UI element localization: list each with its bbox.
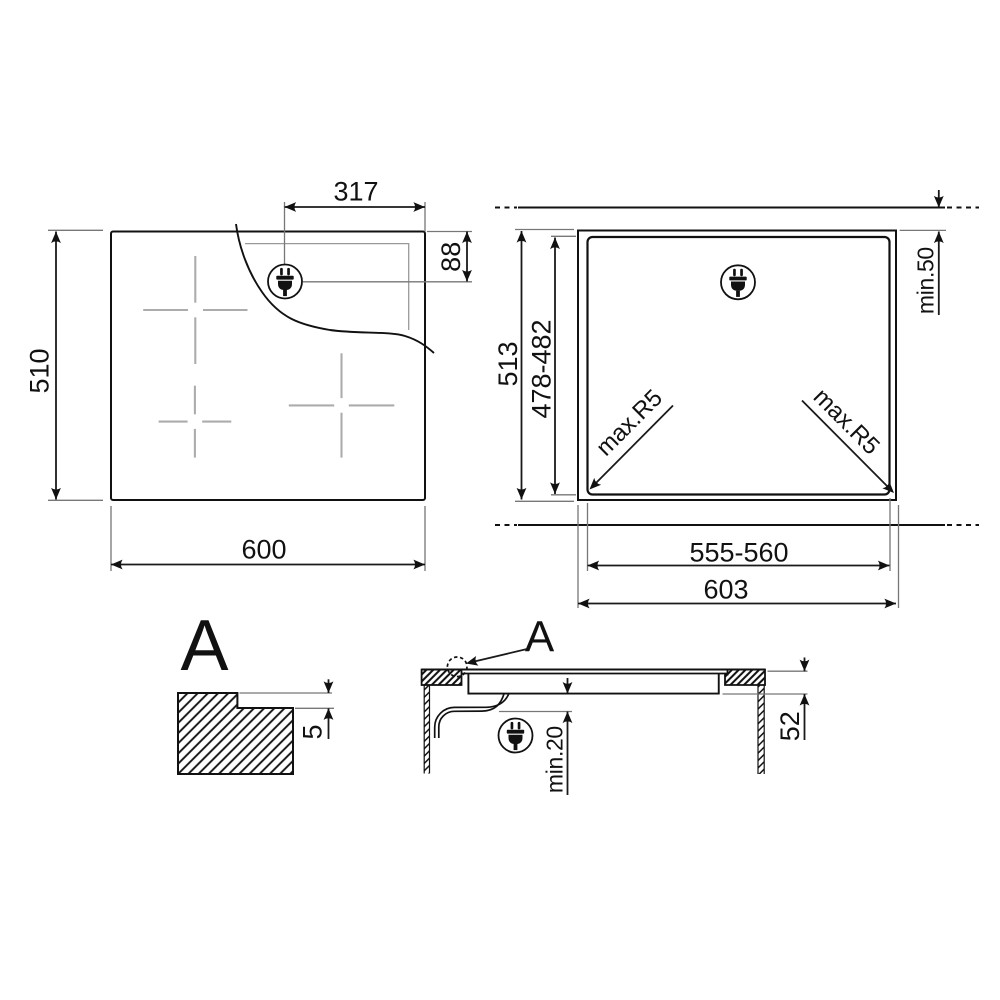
svg-text:min.50: min.50 [913,247,939,314]
svg-text:600: 600 [241,535,286,565]
svg-text:max.R5: max.R5 [808,383,885,460]
svg-text:A: A [180,606,228,686]
svg-text:510: 510 [24,348,54,393]
svg-text:478-482: 478-482 [527,319,557,418]
svg-text:min.20: min.20 [542,726,568,793]
svg-text:603: 603 [703,575,748,605]
svg-text:5: 5 [298,724,328,739]
svg-text:A: A [525,613,555,662]
svg-text:513: 513 [493,341,523,386]
svg-text:52: 52 [775,711,805,741]
svg-text:317: 317 [333,177,378,207]
svg-text:555-560: 555-560 [689,538,788,568]
svg-text:88: 88 [436,242,466,272]
